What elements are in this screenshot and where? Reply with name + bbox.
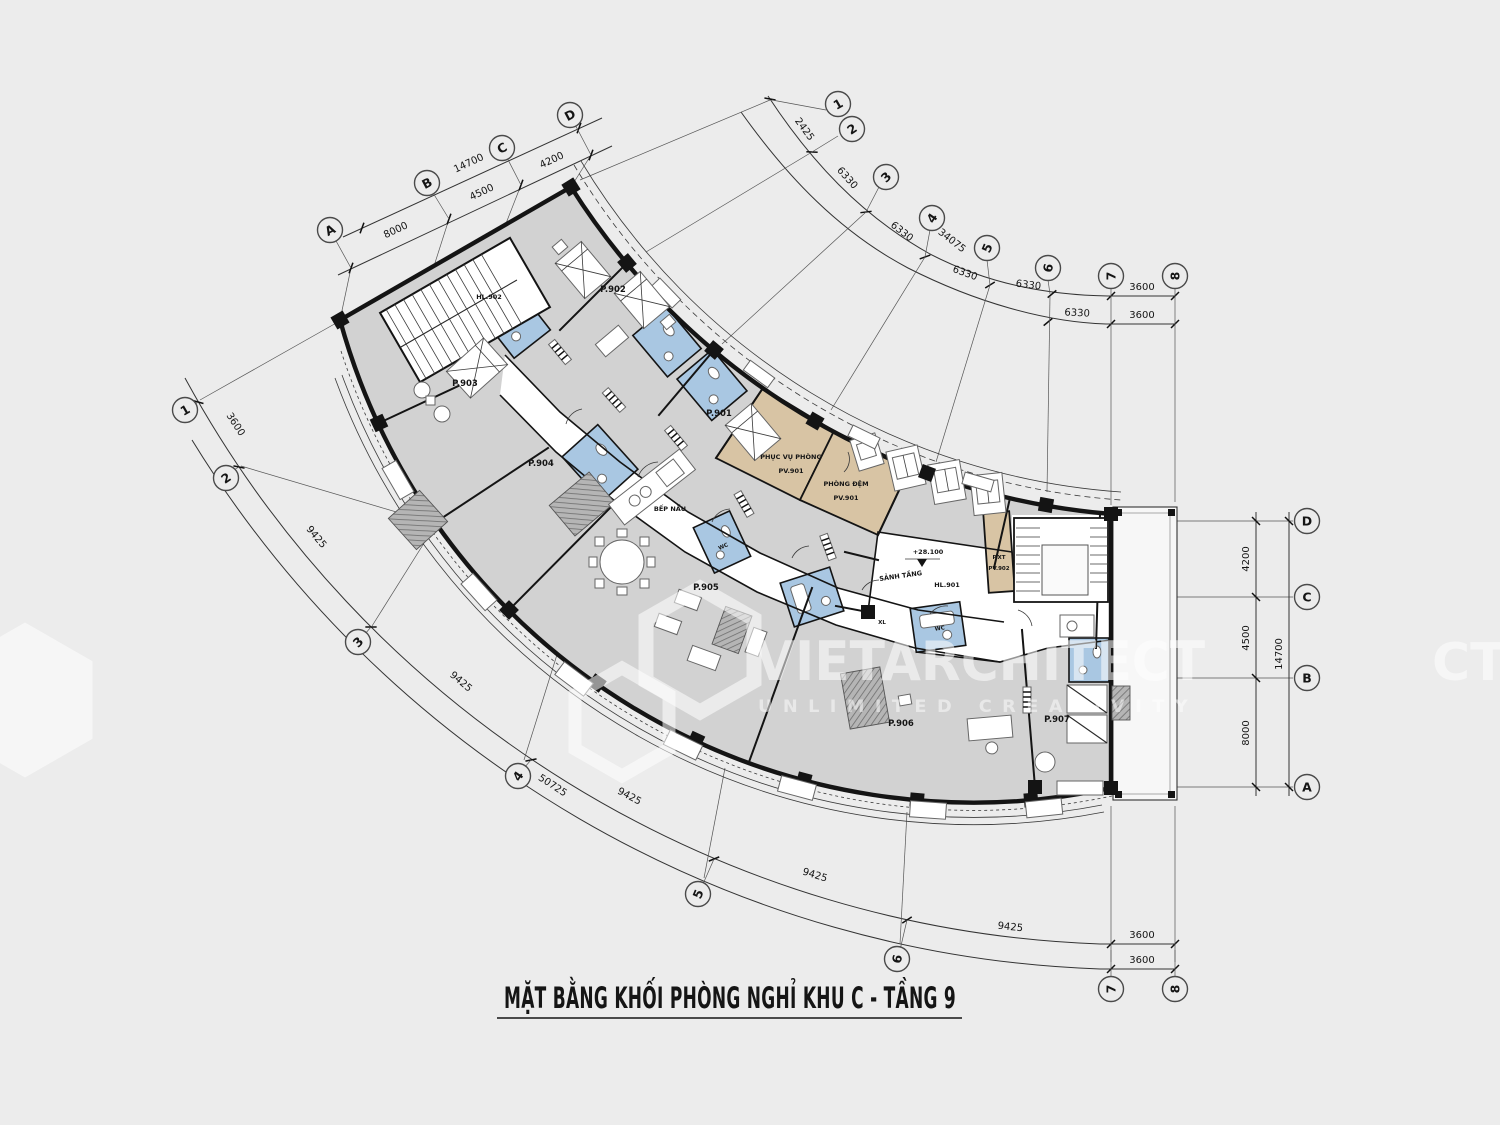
label-buffer-no: PV.901 (834, 494, 859, 502)
label-service-no: PV.901 (779, 467, 804, 475)
label-buffer: PHÒNG ĐỆM (823, 479, 868, 488)
dim-bot-4-5: 9425 (615, 786, 643, 808)
dim-right-c-b: 4500 (1241, 625, 1252, 650)
dim-left-b-c: 4500 (468, 182, 496, 203)
dim-left-a-b: 8000 (382, 220, 410, 241)
label-xl: XL (878, 620, 886, 626)
dim-top-6-7: 6330 (1064, 307, 1090, 319)
label-p906: P.906 (888, 719, 914, 729)
svg-text:7: 7 (1104, 272, 1119, 281)
dim-bot-7-8b: 3600 (1129, 955, 1154, 966)
label-p903: P.903 (452, 379, 478, 389)
dim-top-5-6: 6330 (1015, 279, 1042, 293)
label-level: +28.100 (913, 548, 944, 556)
svg-text:B: B (1302, 671, 1312, 686)
svg-text:8: 8 (1168, 272, 1183, 281)
label-hl902: HL.902 (476, 293, 502, 301)
label-p907: P.907 (1044, 715, 1070, 725)
dim-top-7-8b: 3600 (1129, 310, 1154, 321)
grid-bubbles-top: 1 2 3 4 5 6 7 8 (772, 92, 1188, 331)
dim-top-total: 34075 (936, 227, 968, 255)
label-service: PHỤC VỤ PHÒNG (760, 452, 822, 461)
stair-hl901 (1014, 518, 1108, 602)
dim-left-total: 14700 (452, 152, 485, 175)
dim-bot-3-4: 9425 (447, 670, 474, 695)
watermark-edge-fragment: CT (1432, 633, 1500, 693)
dim-right-d-c: 4200 (1241, 546, 1252, 571)
floorplan-drawing: 2425 6330 6330 34075 6330 6330 6330 3600… (0, 0, 1500, 1125)
watermark-brand: VIETARCHITECT (755, 630, 1205, 693)
dim-right-total: 14700 (1274, 638, 1285, 670)
label-pxt: P.XT (992, 555, 1005, 561)
dim-bot-6-7: 9425 (997, 921, 1023, 935)
dim-top-3-4: 6330 (888, 220, 915, 244)
dim-right-b-a: 8000 (1241, 720, 1252, 745)
dim-left-c-d: 4200 (538, 150, 566, 171)
dim-bot-2-3: 9425 (304, 524, 329, 551)
dim-bot-1-2: 3600 (224, 411, 247, 438)
title-block: MẶT BẰNG KHỐI PHÒNG NGHỈ KHU C - TẦNG 9 (497, 977, 962, 1018)
svg-text:7: 7 (1104, 985, 1119, 994)
svg-text:C: C (1302, 590, 1311, 605)
dim-top-2-3: 6330 (834, 165, 859, 191)
label-hall-no: HL.901 (934, 581, 960, 589)
label-kitchen: BẾP NẤU (654, 503, 686, 513)
watermark-tagline: UNLIMITED CREATIVITY (758, 697, 1198, 717)
dim-bot-5-6: 9425 (801, 867, 829, 885)
svg-text:D: D (1302, 514, 1312, 529)
label-p902: P.902 (600, 285, 626, 295)
dim-top-1-2: 2425 (792, 116, 816, 143)
dim-bot-7-8a: 3600 (1129, 930, 1154, 941)
svg-text:8: 8 (1168, 985, 1183, 994)
svg-text:A: A (1302, 780, 1312, 795)
page-title: MẶT BẰNG KHỐI PHÒNG NGHỈ KHU C - TẦNG 9 (504, 977, 956, 1015)
label-pxt-no: PV.902 (988, 566, 1009, 572)
label-p901: P.901 (706, 409, 732, 419)
floorplan-page: 2425 6330 6330 34075 6330 6330 6330 3600… (0, 0, 1500, 1125)
label-p904: P.904 (528, 459, 554, 469)
label-p905: P.905 (693, 583, 719, 593)
dim-top-7-8a: 3600 (1129, 282, 1154, 293)
dim-top-4-5: 6330 (951, 264, 979, 283)
